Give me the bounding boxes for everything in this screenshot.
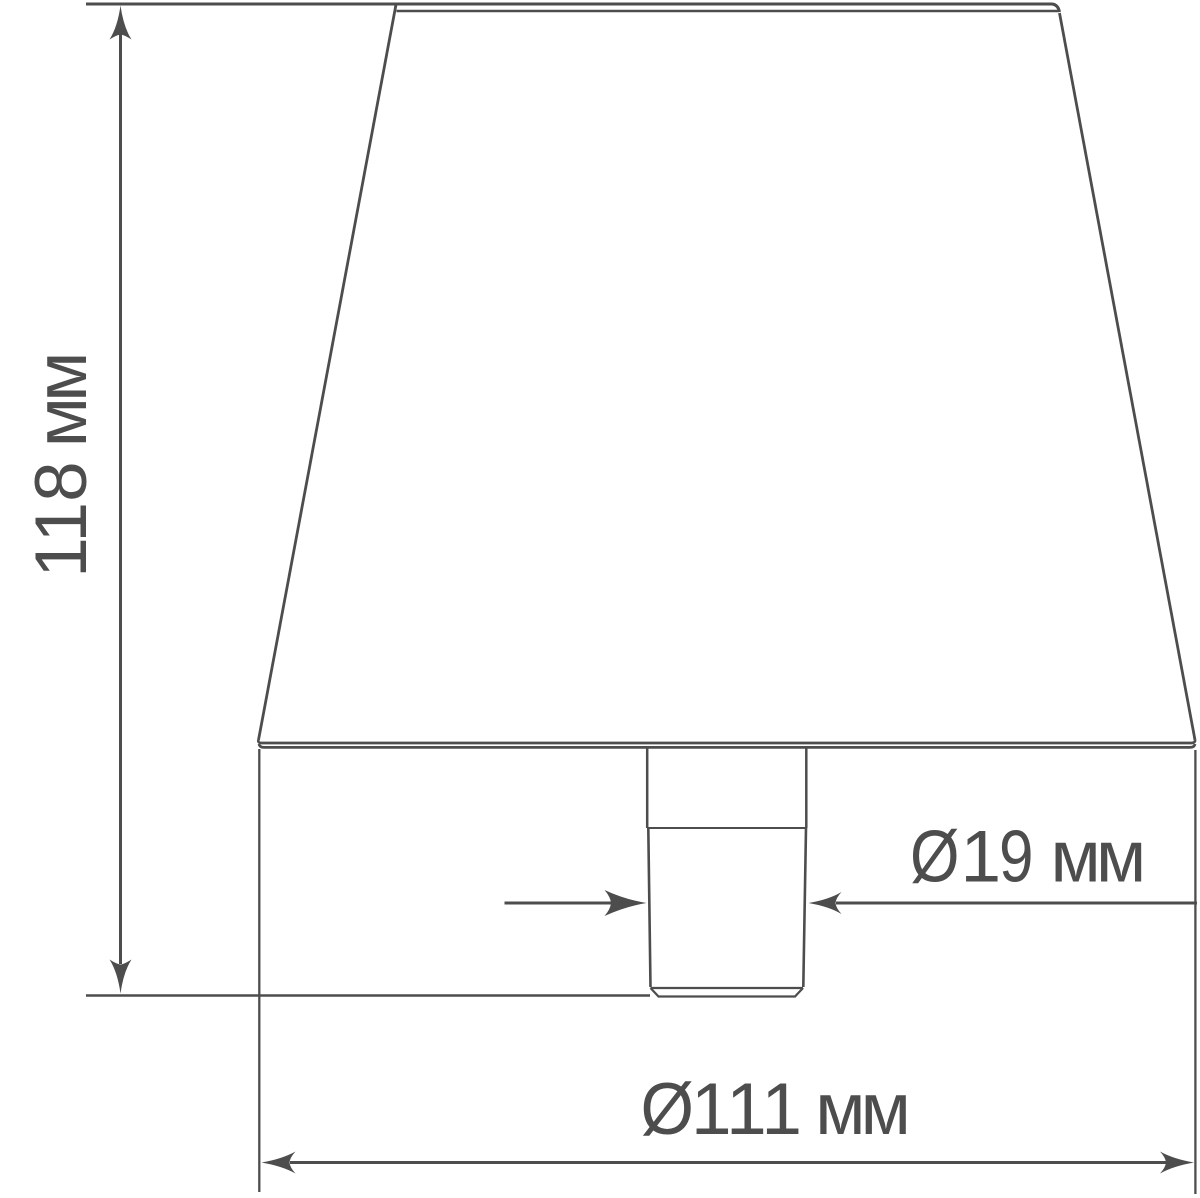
svg-text:Ø19мм: Ø19мм [910, 817, 1142, 898]
svg-text:Ø111мм: Ø111мм [641, 1069, 907, 1150]
svg-text:118мм: 118мм [21, 356, 102, 578]
